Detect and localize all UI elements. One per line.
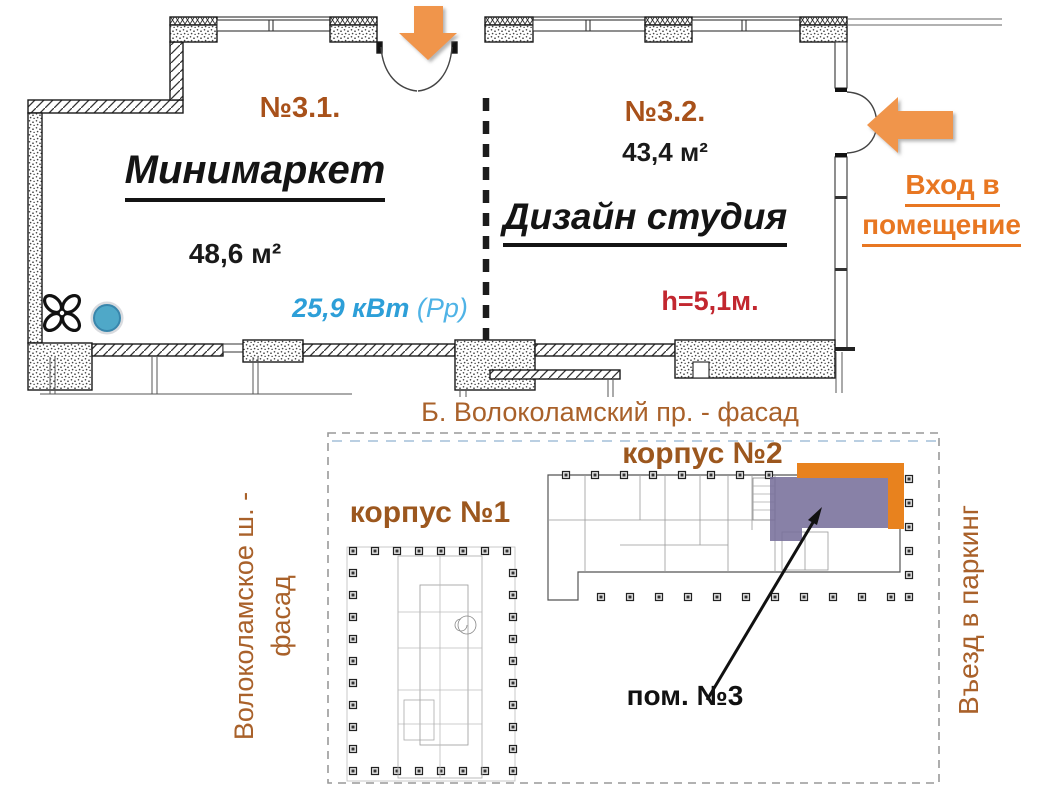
entrance-label-line2: помещение — [835, 209, 1048, 247]
site-plan-title: Б. Волоколамский пр. - фасад — [390, 397, 830, 428]
building1-plan — [347, 547, 517, 781]
room2-area: 43,4 м² — [585, 137, 745, 168]
parking-entrance-label: Въезд в паркинг — [950, 430, 987, 790]
room2-number: №3.2. — [585, 96, 745, 129]
unit3-label: пом. №3 — [600, 680, 770, 712]
room1-area: 48,6 м² — [135, 238, 335, 270]
building2-plan — [548, 463, 913, 601]
flyer-canvas: №3.1. Минимаркет 48,6 м² 25,9 кВт (Рр) №… — [0, 0, 1048, 793]
room2-ceiling-height: h=5,1м. — [630, 286, 790, 317]
ventilation-fan-icon — [41, 292, 82, 333]
room1-power: 25,9 кВт (Рр) — [280, 293, 480, 324]
left-facade-line2: фасад — [263, 460, 300, 772]
room1-name: Минимаркет — [95, 148, 415, 202]
building1-interior — [398, 556, 482, 778]
entrance-arrow-down-icon — [399, 6, 457, 60]
building1-columns — [350, 548, 517, 775]
left-facade-line1: Волоколамское ш. - — [226, 460, 263, 772]
building1-label: корпус №1 — [340, 496, 520, 530]
entrance-label-line1: Вход в — [860, 169, 1045, 207]
entrance-arrow-left-icon — [867, 97, 953, 153]
left-facade-label: Волоколамское ш. - фасад — [226, 460, 300, 772]
room2-name: Дизайн студия — [480, 196, 810, 247]
room1-number: №3.1. — [180, 92, 420, 125]
blue-marker-dot — [92, 303, 122, 333]
building2-label: корпус №2 — [610, 437, 795, 471]
